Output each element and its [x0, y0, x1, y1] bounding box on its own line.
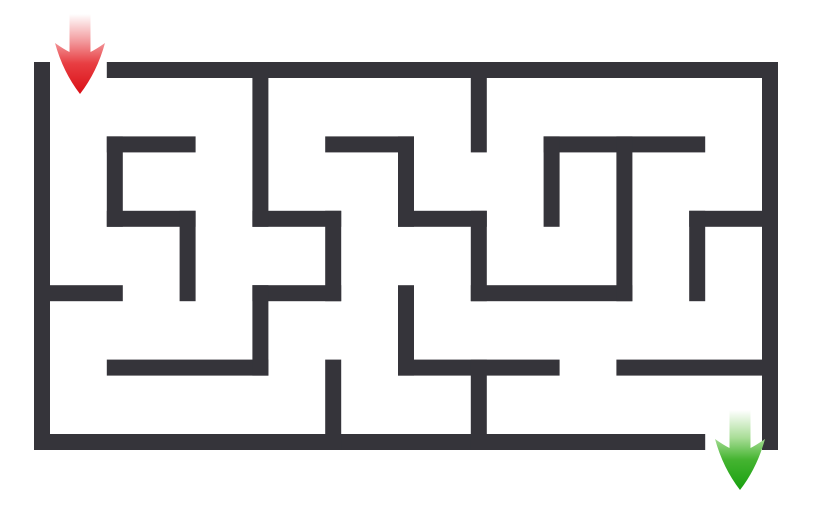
maze-canvas [0, 0, 814, 512]
maze-svg [0, 0, 814, 512]
start-arrow-icon [55, 14, 105, 94]
maze-wall-segment [252, 285, 268, 375]
maze-wall-segment [689, 211, 705, 301]
end-arrow-icon [715, 410, 765, 490]
maze-wall-segment [325, 211, 341, 301]
maze-wall-segment [762, 62, 778, 450]
maze-walls [34, 62, 778, 450]
maze-wall-segment [471, 285, 633, 301]
maze-wall-segment [34, 62, 50, 450]
maze-wall-segment [471, 62, 487, 152]
maze-wall-segment [616, 136, 632, 301]
maze-wall-segment [398, 136, 414, 226]
maze-wall-segment [180, 211, 196, 301]
maze-wall-segment [616, 360, 778, 376]
maze-wall-segment [252, 62, 268, 227]
maze-wall-segment [107, 136, 123, 226]
maze-wall-segment [107, 360, 269, 376]
maze-wall-segment [471, 211, 487, 301]
maze-wall-segment [544, 136, 560, 226]
maze-wall-segment [325, 360, 341, 450]
maze-wall-segment [107, 62, 778, 78]
maze-wall-segment [471, 360, 487, 450]
maze-wall-segment [398, 285, 414, 375]
maze-wall-segment [34, 434, 705, 450]
